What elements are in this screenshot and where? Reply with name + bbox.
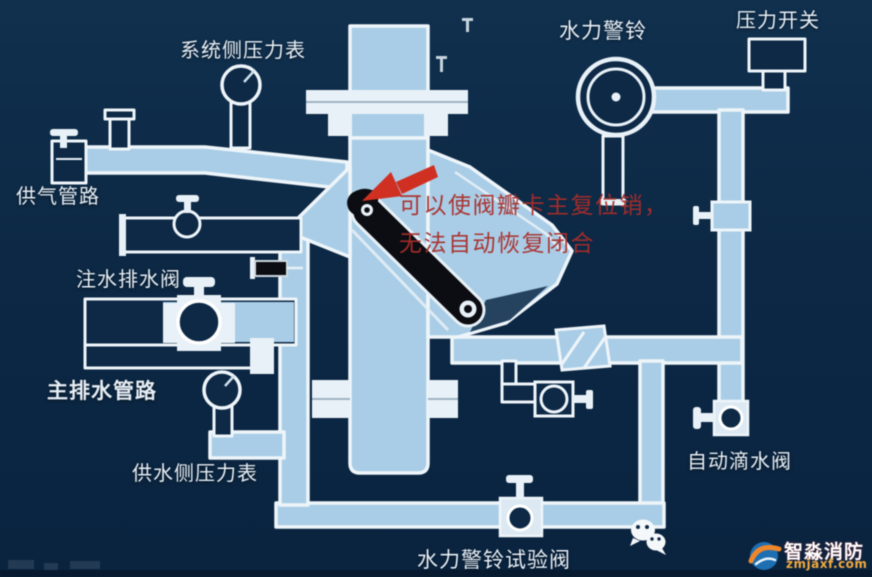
main-drain-pipe <box>85 345 253 368</box>
supply-main-pipe <box>276 503 664 527</box>
label-alarm-test-valve: 水力警铃试验阀 <box>417 549 571 572</box>
alarm-tee-down-pipe <box>640 361 663 511</box>
trim-line-pipe <box>123 218 301 252</box>
air-regulator <box>110 117 129 149</box>
label-fill-drain-valve: 注水排水阀 <box>76 268 181 290</box>
trim-coupling-valve <box>693 202 750 230</box>
label-auto-drip-valve: 自动滴水阀 <box>687 450 792 472</box>
side-valve-connector <box>502 384 538 402</box>
air-source-box <box>52 141 86 183</box>
system-gauge-stem <box>231 100 250 148</box>
auto-drip-valve <box>693 401 748 435</box>
corner-artifacts <box>8 560 100 570</box>
dry-pipe-valve-diagram: 系统侧压力表 水力警铃 压力开关 供气管路 注水排水阀 主排水管路 供水侧压力表… <box>0 0 872 577</box>
air-supply-pipe <box>60 147 347 189</box>
alarm-test-valve <box>500 475 542 536</box>
alarm-side-valve <box>535 382 593 416</box>
label-pressure-switch: 压力开关 <box>736 9 820 31</box>
label-system-gauge: 系统侧压力表 <box>180 39 306 61</box>
water-motor-bell <box>578 59 654 135</box>
annotation-line2: 无法自动恢复闭合 <box>399 224 595 258</box>
label-alarm-bell: 水力警铃 <box>559 20 647 43</box>
label-air-supply: 供气管路 <box>16 185 100 207</box>
trim-line-end-cap <box>119 214 126 256</box>
annotation-line1: 可以使阀瓣卡主复位销， <box>399 186 669 220</box>
label-supply-gauge: 供水侧压力表 <box>132 462 258 484</box>
supply-gauge-stem <box>214 406 232 436</box>
drain-end-block <box>250 338 274 374</box>
supply-side-gauge <box>204 372 240 408</box>
brand-logo-icon <box>750 542 779 570</box>
alarm-check-valve <box>556 326 610 370</box>
system-side-gauge <box>222 66 260 104</box>
watermark-url: zmjaxf.com <box>786 557 867 571</box>
air-regulator-cap <box>105 110 134 119</box>
vent-mark-icon <box>436 18 473 72</box>
label-main-drain: 主排水管路 <box>47 380 157 403</box>
system-riser-pipe <box>350 26 428 138</box>
pressure-switch-box <box>749 39 805 71</box>
